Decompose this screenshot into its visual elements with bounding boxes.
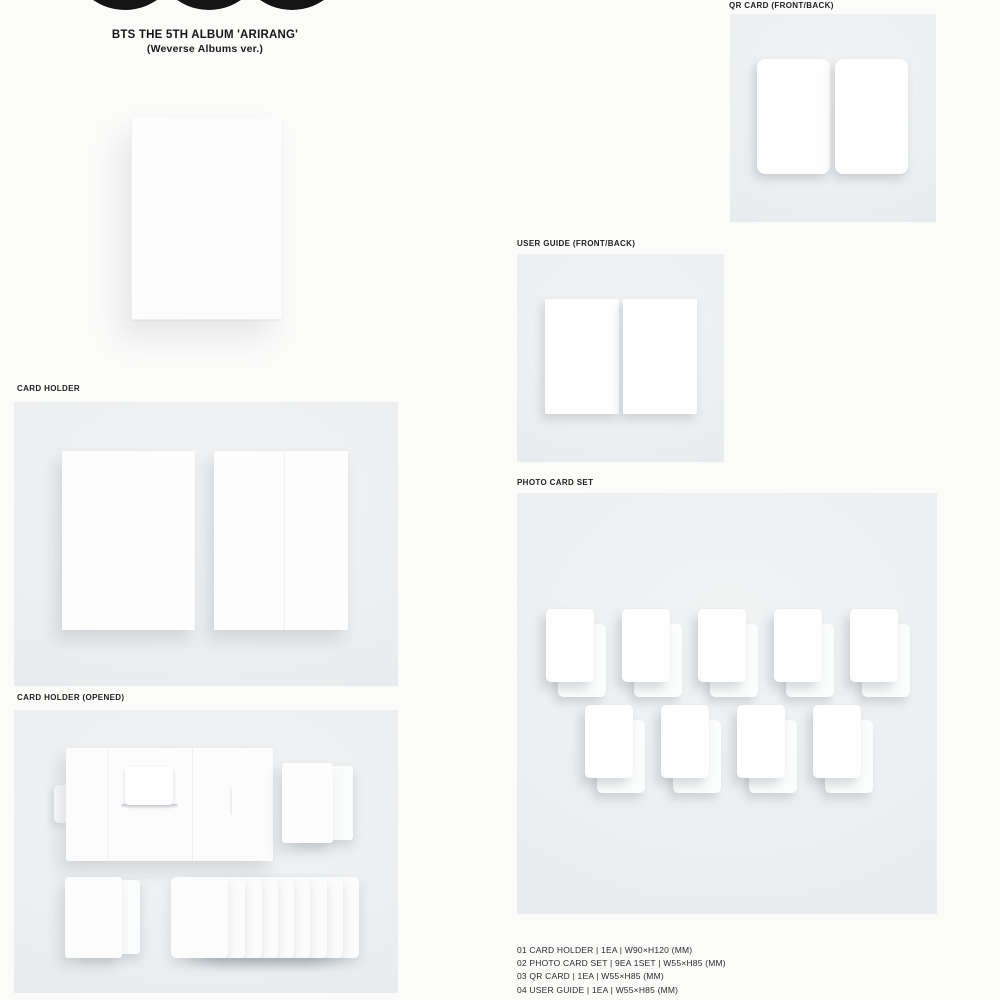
qr-card-back-image xyxy=(835,59,908,174)
user-guide-back-image xyxy=(623,299,697,414)
logo-circle-icon xyxy=(153,0,265,10)
fan-card xyxy=(171,877,228,958)
photo-card-pair xyxy=(585,705,645,793)
card-stack-front xyxy=(65,877,122,958)
photo-card-set-label: PHOTO CARD SET xyxy=(517,478,593,487)
photo-card-front xyxy=(774,609,822,682)
fold-line xyxy=(192,748,193,861)
photo-card-front xyxy=(622,609,670,682)
photo-card-front xyxy=(585,705,633,778)
fold-line xyxy=(284,451,285,630)
photo-card-pair xyxy=(546,609,606,697)
title-block: BTS THE 5TH ALBUM 'ARIRANG' (Weverse Alb… xyxy=(0,29,410,55)
album-subtitle: (Weverse Albums ver.) xyxy=(0,43,410,55)
qr-card-panel xyxy=(730,14,936,222)
photo-card-front xyxy=(698,609,746,682)
photo-card-front xyxy=(850,609,898,682)
album-components-page: BTS THE 5TH ALBUM 'ARIRANG' (Weverse Alb… xyxy=(0,0,1000,1000)
photo-card-front xyxy=(661,705,709,778)
qr-card-label: QR CARD (FRONT/BACK) xyxy=(729,1,834,10)
logo-circle-icon xyxy=(69,0,181,10)
spec-item: 01 CARD HOLDER | 1EA | W90×H120 (MM) xyxy=(517,944,726,957)
qr-card-front-image xyxy=(757,59,830,174)
user-guide-panel xyxy=(517,254,724,462)
card-stack-front xyxy=(282,763,333,843)
card-holder-back-image xyxy=(214,451,348,630)
photo-card-pair xyxy=(737,705,797,793)
photo-card-front xyxy=(546,609,594,682)
photo-card-pair xyxy=(813,705,873,793)
user-guide-front-image xyxy=(545,299,619,414)
spec-item: 03 QR CARD | 1EA | W55×H85 (MM) xyxy=(517,970,726,983)
photo-card-pair xyxy=(850,609,910,697)
spec-item: 04 USER GUIDE | 1EA | W55×H85 (MM) xyxy=(517,984,726,997)
fold-line xyxy=(108,748,109,861)
card-slit xyxy=(230,788,232,815)
card-holder-panel xyxy=(14,402,398,686)
album-box-image xyxy=(131,118,282,320)
card-holder-label: CARD HOLDER xyxy=(17,384,80,393)
photo-card-set-panel xyxy=(517,493,937,914)
photo-card-front xyxy=(813,705,861,778)
photo-card-pair xyxy=(622,609,682,697)
logo-circle-icon xyxy=(236,0,348,10)
component-spec-list: 01 CARD HOLDER | 1EA | W90×H120 (MM) 02 … xyxy=(517,944,726,997)
card-holder-front-image xyxy=(62,451,195,630)
album-title: BTS THE 5TH ALBUM 'ARIRANG' xyxy=(0,29,410,41)
photo-card-front xyxy=(737,705,785,778)
photo-card-pair xyxy=(698,609,758,697)
card-holder-opened-label: CARD HOLDER (OPENED) xyxy=(17,693,124,702)
opened-card-holder-image xyxy=(66,748,273,861)
user-guide-label: USER GUIDE (FRONT/BACK) xyxy=(517,239,635,248)
card-holder-opened-panel xyxy=(14,710,398,993)
photo-card-pair xyxy=(774,609,834,697)
pocket-card-image xyxy=(125,767,173,805)
photo-card-pair xyxy=(661,705,721,793)
spec-item: 02 PHOTO CARD SET | 9EA 1SET | W55×H85 (… xyxy=(517,957,726,970)
